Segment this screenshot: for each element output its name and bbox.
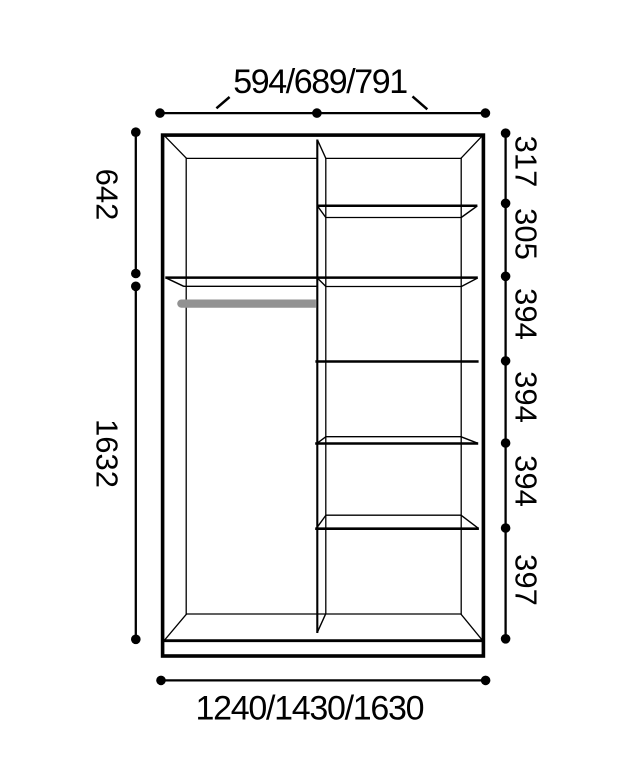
svg-text:394: 394 (509, 455, 544, 507)
svg-text:642: 642 (90, 169, 125, 221)
svg-text:394: 394 (509, 371, 544, 423)
svg-text:1632: 1632 (90, 419, 125, 488)
svg-text:305: 305 (509, 208, 544, 260)
svg-text:1240/1430/1630: 1240/1430/1630 (196, 690, 425, 728)
svg-text:397: 397 (509, 554, 544, 606)
svg-text:394: 394 (509, 288, 544, 340)
svg-text:594/689/791: 594/689/791 (233, 63, 408, 101)
svg-text:317: 317 (509, 136, 544, 188)
